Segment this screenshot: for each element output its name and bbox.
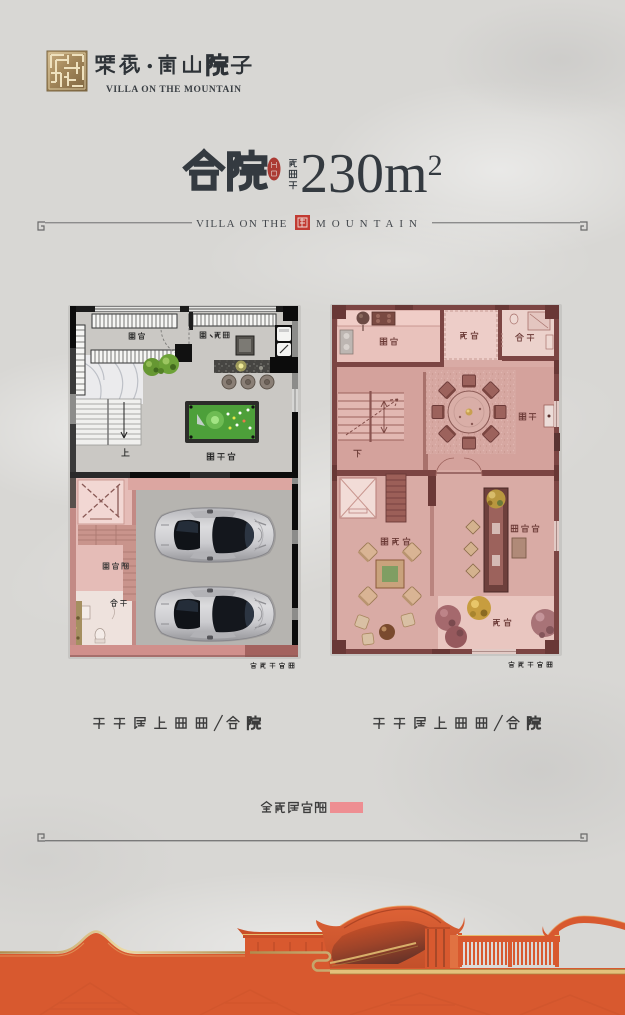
svg-text:MOUNTAIN: MOUNTAIN — [316, 218, 423, 230]
svg-text:VILLA ON THE MOUNTAIN: VILLA ON THE MOUNTAIN — [106, 85, 242, 95]
svg-text:230m2: 230m2 — [300, 143, 443, 205]
svg-text:VILLA ON THE: VILLA ON THE — [196, 218, 288, 230]
